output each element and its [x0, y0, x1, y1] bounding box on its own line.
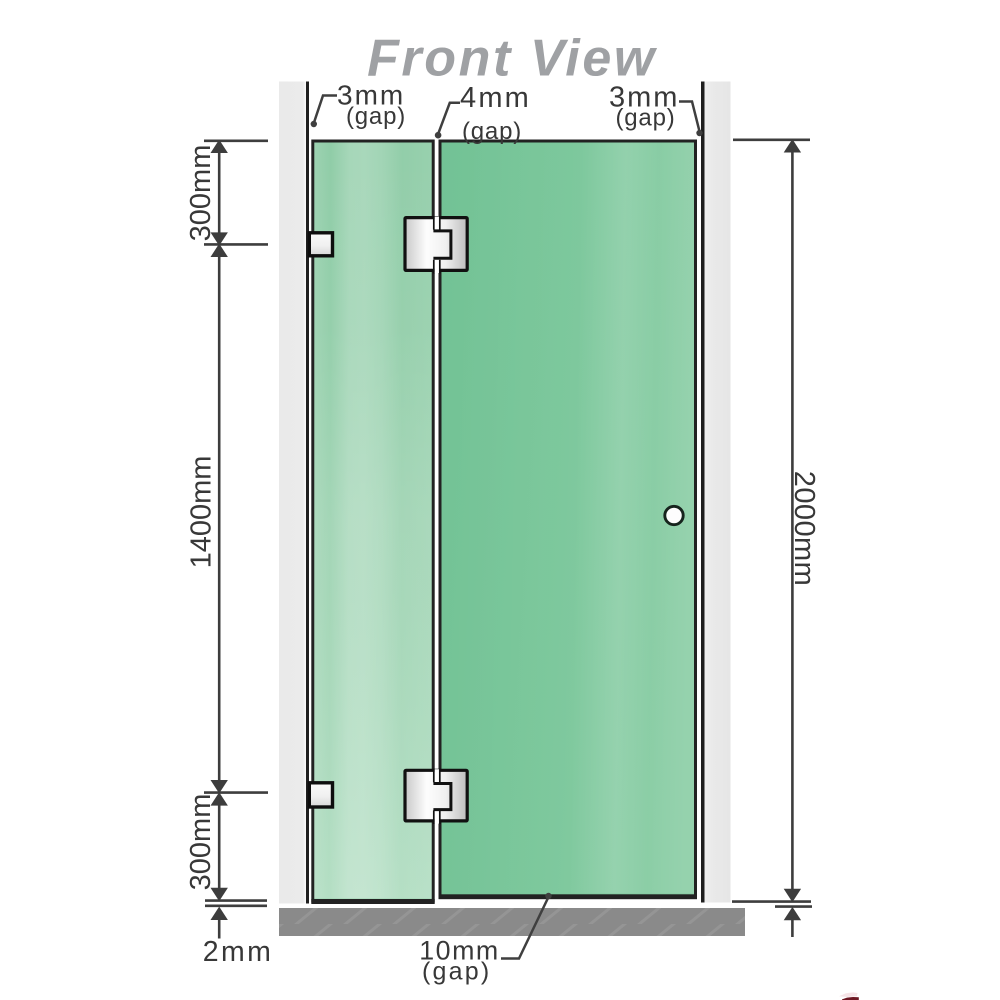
svg-text:4mm: 4mm — [460, 82, 531, 114]
svg-text:(gap): (gap) — [346, 103, 406, 130]
svg-text:Front View: Front View — [367, 30, 658, 88]
svg-text:1400mm: 1400mm — [186, 456, 218, 569]
svg-text:(gap): (gap) — [422, 958, 491, 986]
svg-text:2000mm: 2000mm — [788, 471, 820, 587]
svg-text:(gap): (gap) — [462, 118, 522, 145]
svg-text:(gap): (gap) — [615, 105, 675, 132]
svg-text:2mm: 2mm — [203, 936, 274, 968]
svg-text:300mm: 300mm — [185, 794, 217, 891]
svg-text:300mm: 300mm — [185, 145, 217, 242]
